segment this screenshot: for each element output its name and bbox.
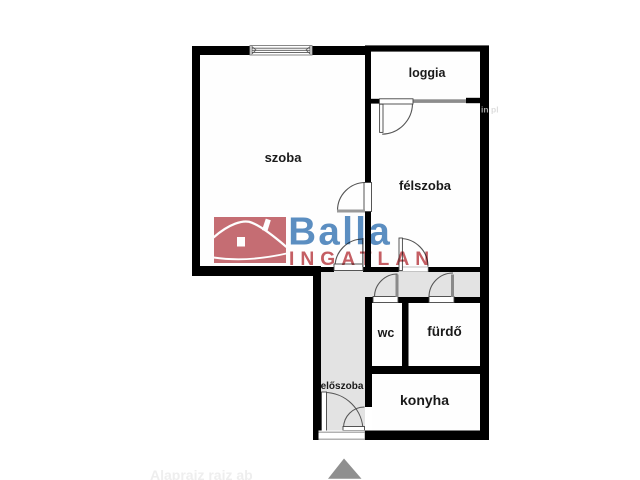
svg-text:Balla: Balla	[288, 211, 392, 254]
svg-text:fürdő: fürdő	[427, 324, 462, 339]
svg-text:előszoba: előszoba	[321, 381, 364, 392]
svg-text:loggia: loggia	[409, 66, 447, 80]
svg-text:in: in	[481, 105, 489, 115]
svg-text:pl: pl	[491, 105, 499, 115]
svg-text:wc: wc	[377, 326, 395, 340]
svg-text:félszoba: félszoba	[399, 178, 452, 193]
svg-text:Alaprajz rajz ab: Alaprajz rajz ab	[150, 467, 253, 480]
svg-text:INGATLAN: INGATLAN	[289, 249, 435, 270]
svg-text:konyha: konyha	[400, 392, 449, 408]
svg-text:szoba: szoba	[265, 150, 303, 165]
